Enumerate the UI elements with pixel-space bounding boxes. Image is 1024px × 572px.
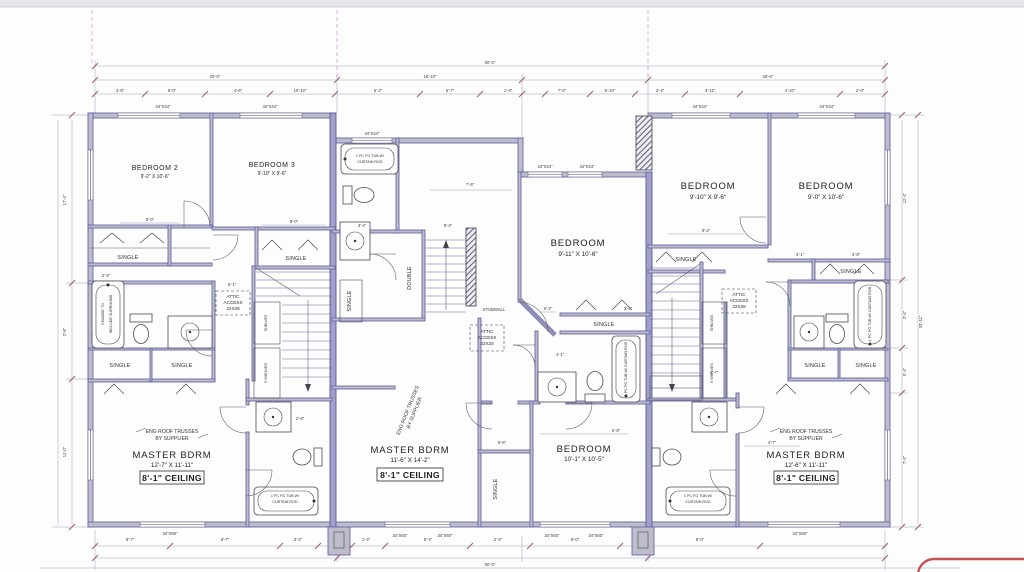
dim-right-1: 2'-4" (902, 310, 907, 319)
room-dims-bedroom3: 9'-10" X 9'-6" (258, 171, 287, 177)
interior-dim: 2'-4" (102, 273, 111, 278)
room-name-bedroom-right2: BEDROOM (799, 181, 854, 192)
tub-note: CHANGE TO (101, 303, 105, 325)
tub-label: CURTAIN ROD (357, 160, 383, 164)
interior-dim: 8'-0" (290, 219, 299, 224)
dim-right-2: 5'-4" (902, 367, 907, 376)
room-name-bedroom-right1: BEDROOM (681, 181, 736, 192)
chimney-hatch (636, 116, 652, 170)
room-name-master-right: MASTER BDRM (767, 450, 846, 461)
closet-single: SINGLE (285, 256, 306, 262)
shelves5-label: 5 SHELVES (264, 363, 268, 383)
attic-label: ACCESS (730, 298, 749, 303)
dim-bottom-overall: 60'-0" (485, 562, 496, 567)
interior-dim: 5'-2" (544, 306, 553, 311)
ceiling-label-right: 8'-1" CEILING (776, 473, 836, 483)
dim-top3-5: 5'-7" (446, 88, 455, 93)
window-callout: 44"X44" (692, 104, 708, 109)
dim-top2-0: 20'-0" (210, 74, 221, 79)
ceiling-label-mid: 8'-1" CEILING (380, 470, 440, 480)
dim-top2-1: 10'-10" (424, 74, 438, 79)
dim-right-overall: 33'-11" (918, 315, 923, 328)
attic-label: ATTIC (227, 294, 241, 299)
room-name-bedroom3: BEDROOM 3 (249, 162, 296, 169)
window-callout: 44"X44" (262, 104, 278, 109)
window-callout: 44"X44" (819, 104, 835, 109)
trusses-note: ENG ROOF TRUSSES (146, 429, 199, 435)
dim-top3-10: 4'-11" (705, 88, 716, 93)
dim-bottom-6: 2'-4" (494, 537, 503, 542)
closet-single: SINGLE (109, 363, 130, 369)
dim-top-overall: 60'-0" (485, 60, 496, 65)
trusses-note: BY SUPPLIER (789, 436, 823, 442)
room-name-bedroom-lower: BEDROOM (557, 444, 612, 455)
floor-plan-svg: 60'-0" 20'-0" 10'-10" 28'-6" 3'-8" 9'-0"… (0, 0, 1024, 572)
dim-top3-6: 1'-4" (504, 88, 513, 93)
top-gray-bar (0, 0, 1024, 7)
shelves-label: SHELVES (264, 314, 268, 331)
attic-label: ACCESS (224, 300, 243, 305)
window-callout: 34"X60" (392, 533, 408, 538)
closet-single: SINGLE (593, 322, 614, 328)
attic-label: 22X28 (732, 304, 746, 309)
attic-label: 22X28 (226, 306, 240, 311)
tub-label: 1 PC FG TUB W/ (684, 494, 713, 498)
dim-bottom-5: 8'-4" (424, 537, 433, 542)
attic-label: ATTIC (481, 329, 495, 334)
dim-top3-8: 5'-10" (605, 88, 616, 93)
window-callout: 44"X44" (537, 164, 553, 169)
window-callout: 44"X44" (579, 164, 595, 169)
dim-bottom-8: 8'-0" (696, 537, 705, 542)
interior-dim: 3'-2" (624, 306, 633, 311)
dim-bottom-7: 9'-0" (571, 537, 580, 542)
window-callout: 34"X60" (437, 533, 453, 538)
dim-bottom-0: 8'-7" (126, 537, 135, 542)
dim-top2-2: 28'-6" (763, 74, 774, 79)
interior-dim: 3'-1" (796, 252, 805, 257)
dim-top3-4: 5'-2" (374, 88, 383, 93)
closet-single: SINGLE (804, 363, 825, 369)
ceiling-label-left: 8'-1" CEILING (142, 473, 202, 483)
interior-dim: 5'-1" (228, 282, 237, 287)
dim-top3-0: 3'-8" (116, 88, 125, 93)
closet-single: SINGLE (855, 363, 876, 369)
dim-right-0: 11'-4" (902, 192, 907, 203)
window-callout: 34"X60" (162, 531, 178, 536)
window-callout: 34"X60" (792, 531, 808, 536)
room-dims-bedroom-right1: 9'-10" X 9'-6" (690, 194, 726, 201)
dim-right-3: 7'-4" (902, 455, 907, 464)
dim-top3-11: 4'-10" (785, 88, 796, 93)
tub-label: CURTAIN ROD (685, 500, 711, 504)
trusses-note: BY SUPPLIER (155, 436, 189, 442)
tub-label-vertical: 1 PC FG TUB W/ CURTAIN ROD (868, 286, 872, 341)
interior-dim: 5'-8" (612, 428, 621, 433)
interior-dim: 3'-4" (358, 223, 367, 228)
dim-top3-9: 3'-4" (656, 88, 665, 93)
window-callout: 44"X44" (155, 104, 171, 109)
dim-bottom-2: 3'-2" (294, 537, 303, 542)
room-dims-bedroom-lower: 10'-1" X 10'-5" (564, 456, 604, 463)
interior-dim: 8'-4" (444, 223, 453, 228)
room-name-bedroom-center: BEDROOM (551, 238, 606, 249)
window-callout: 34"X60" (588, 533, 604, 538)
dim-top3-1: 9'-0" (168, 88, 177, 93)
trusses-note: ENG ROOF TRUSSES (780, 429, 833, 435)
room-dims-bedroom2: 9'-2" X 10'-6" (141, 174, 170, 180)
tub-label: 1 PC FG TUB W/ (356, 154, 385, 158)
room-name-master-left: MASTER BDRM (133, 450, 212, 461)
interior-dim: 9'-0" (146, 217, 155, 222)
interior-dim: 4'-7" (768, 440, 777, 445)
dim-top3-12: 2'-0" (856, 88, 865, 93)
room-dims-bedroom-center: 9'-11" X 10'-6" (558, 251, 597, 258)
dim-top3-2: 4'-6" (234, 88, 243, 93)
closet-double: DOUBLE (407, 266, 413, 290)
stubwall-label: STUBWALL (483, 307, 506, 312)
shelves-label: SHELVES (710, 314, 714, 331)
dim-bottom-1: 8'-7" (221, 537, 230, 542)
interior-dim: 6'-6" (498, 440, 507, 445)
room-name-bedroom2: BEDROOM 2 (132, 165, 179, 172)
closet-single: SINGLE (171, 363, 192, 369)
tub-label-vertical: 1 PC FG TUB W/ CURTAIN ROD (624, 341, 628, 396)
dim-top3-3: 10'-10" (294, 88, 308, 93)
attic-label: ACCESS (478, 335, 497, 340)
closet-single: SINGLE (347, 290, 353, 311)
tub-label: CURTAIN ROD (272, 500, 298, 504)
attic-label: ATTIC (733, 292, 747, 297)
dim-left-2: 11'-0" (62, 446, 67, 457)
window-callout: 44"X44" (364, 131, 380, 136)
interior-dim: 2'-6" (296, 416, 305, 421)
tub-note: INCLUDE SURROUND (109, 294, 113, 333)
interior-dim: 4'-1" (556, 352, 565, 357)
floor-plan-page: 60'-0" 20'-0" 10'-10" 28'-6" 3'-8" 9'-0"… (0, 0, 1024, 572)
window-callout: 34"X60" (544, 533, 560, 538)
dim-bottom-4: 1'-4" (362, 537, 371, 542)
closet-single: SINGLE (117, 255, 138, 261)
room-dims-bedroom-right2: 9'-0" X 10'-6" (808, 194, 844, 201)
closet-single: SINGLE (493, 478, 499, 499)
room-dims-master-mid: 11'-6" X 14'-2" (390, 457, 429, 464)
room-dims-master-right: 12'-6" X 11'-11" (785, 462, 827, 469)
dim-left-0: 17'-4" (62, 194, 67, 205)
tub-label: 1 PC FG TUB W/ (271, 494, 300, 498)
interior-dim: 3'-8" (852, 252, 861, 257)
attic-label: 22X28 (480, 341, 494, 346)
dim-top3-7: 7'-0" (558, 88, 567, 93)
interior-dim: 7'-6" (466, 182, 475, 187)
dim-left-1: 2'-8" (62, 327, 67, 336)
interior-dim: 9'-2" (702, 228, 711, 233)
room-name-master-mid: MASTER BDRM (371, 445, 450, 456)
interior-dim: 4'-7" (710, 370, 719, 375)
room-dims-master-left: 12'-7" X 11'-11" (151, 462, 193, 469)
